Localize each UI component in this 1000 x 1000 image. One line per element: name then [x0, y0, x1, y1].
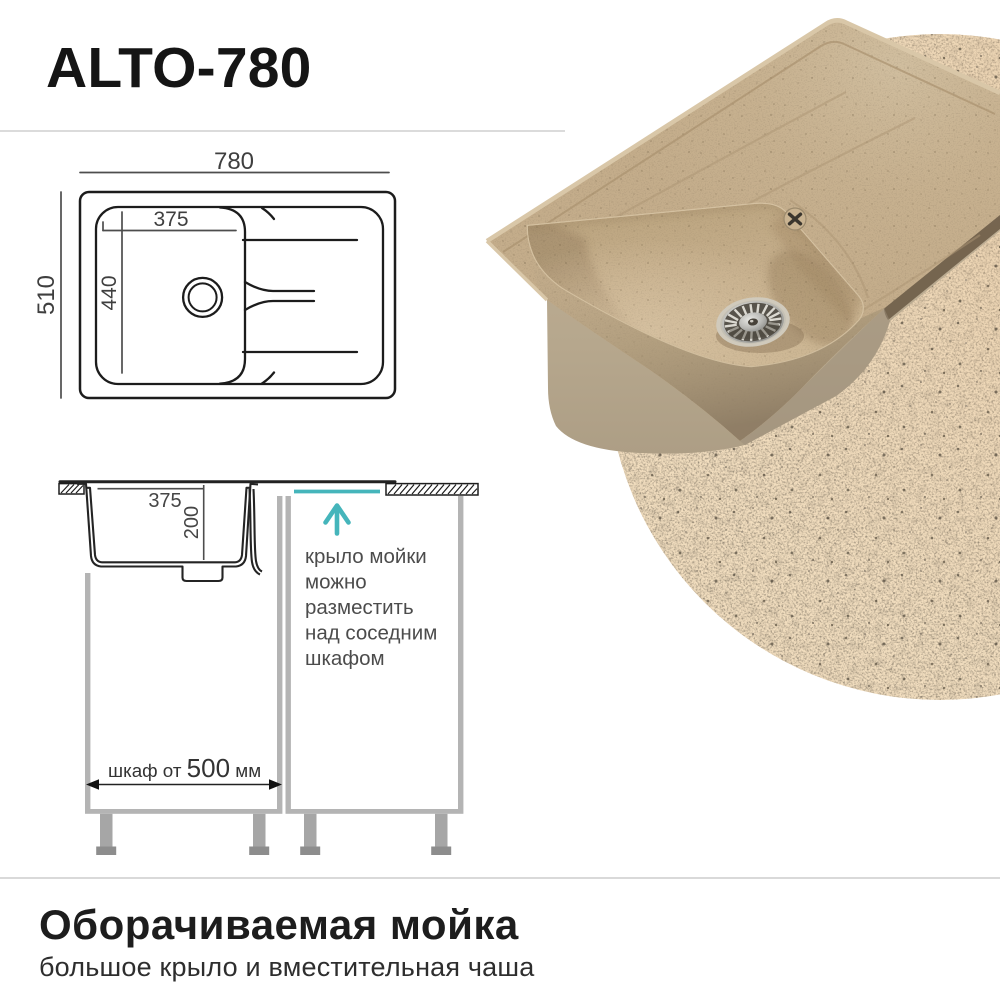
svg-text:200: 200 [181, 506, 203, 539]
svg-text:шкаф от 500 мм: шкаф от 500 мм [108, 753, 261, 783]
svg-text:разместить: разместить [305, 596, 414, 619]
svg-text:375: 375 [148, 490, 181, 512]
svg-text:780: 780 [214, 148, 254, 175]
svg-text:510: 510 [33, 275, 60, 315]
svg-text:можно: можно [305, 571, 367, 594]
svg-text:крыло мойки: крыло мойки [305, 545, 427, 568]
svg-text:440: 440 [98, 275, 121, 310]
svg-text:над соседним: над соседним [305, 622, 437, 645]
svg-text:375: 375 [153, 208, 188, 231]
svg-text:шкафом: шкафом [305, 647, 385, 670]
